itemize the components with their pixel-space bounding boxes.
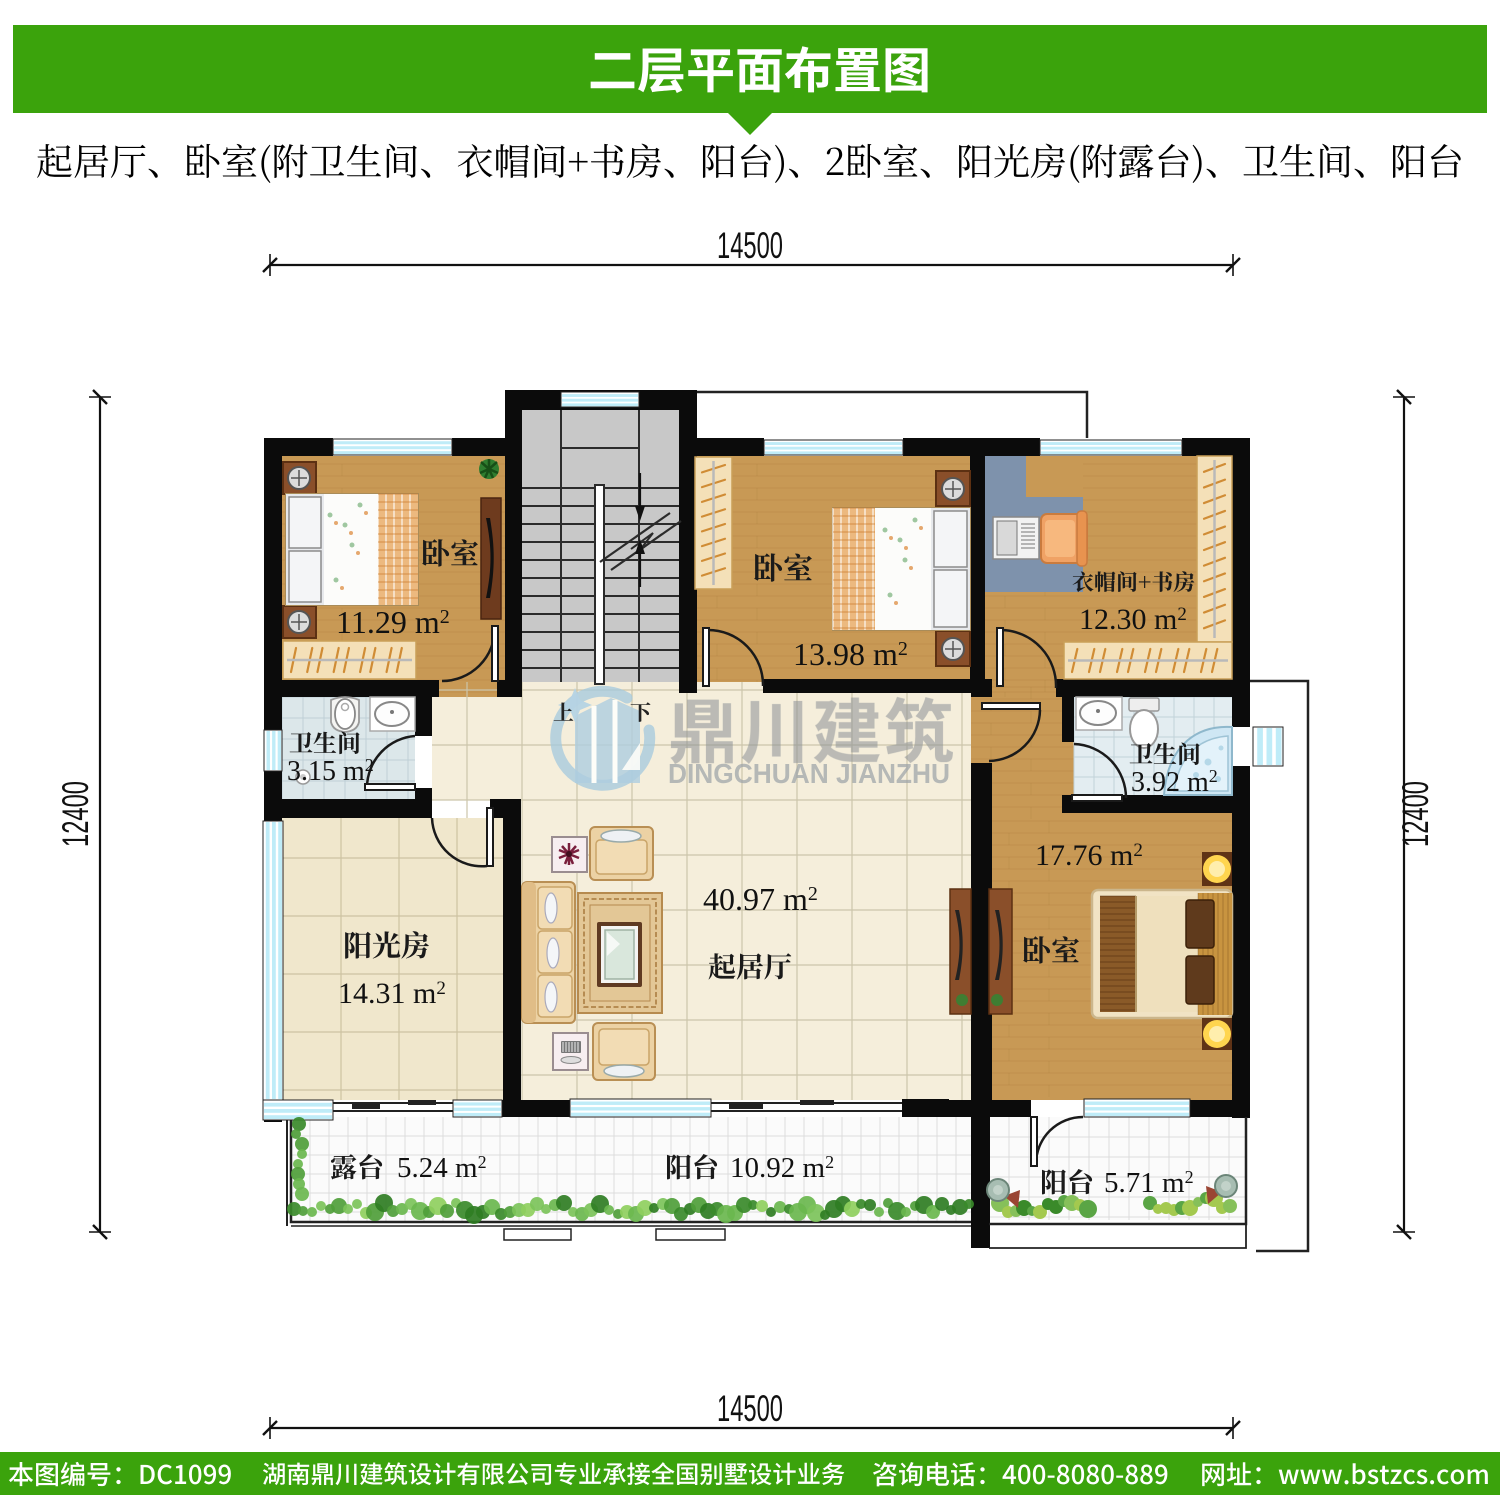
svg-text:5.24 m2: 5.24 m2 [397,1152,487,1184]
svg-text:40.97 m2: 40.97 m2 [703,881,818,917]
svg-text:14500: 14500 [717,1388,783,1429]
svg-text:12400: 12400 [55,781,96,847]
svg-text:5.71 m2: 5.71 m2 [1104,1167,1194,1199]
svg-text:14.31 m2: 14.31 m2 [338,977,446,1010]
svg-text:12400: 12400 [1395,781,1436,847]
svg-text:13.98 m2: 13.98 m2 [793,636,908,672]
svg-text:17.76 m2: 17.76 m2 [1035,839,1143,872]
svg-text:DINGCHUAN JIANZHU: DINGCHUAN JIANZHU [668,758,950,789]
svg-text:3.92 m2: 3.92 m2 [1131,766,1218,798]
svg-text:3.15 m2: 3.15 m2 [287,755,374,787]
svg-text:10.92 m2: 10.92 m2 [730,1152,834,1184]
svg-text:11.29 m2: 11.29 m2 [336,604,450,640]
svg-text:14500: 14500 [717,225,783,266]
svg-text:12.30 m2: 12.30 m2 [1079,603,1187,636]
